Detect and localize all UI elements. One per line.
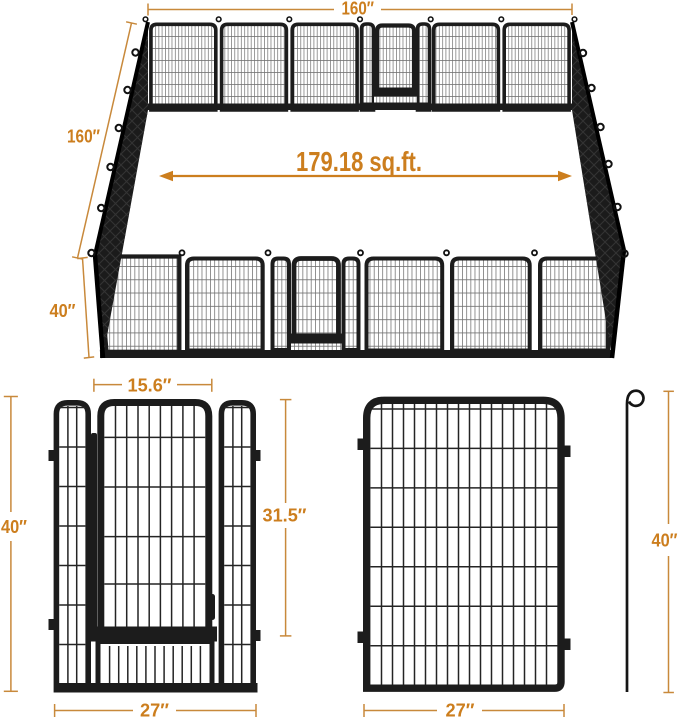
svg-text:15.6″: 15.6″ xyxy=(128,376,172,396)
svg-text:27″: 27″ xyxy=(140,701,169,719)
svg-text:160″: 160″ xyxy=(67,127,100,147)
svg-text:160″: 160″ xyxy=(342,0,375,19)
svg-text:179.18 sq.ft.: 179.18 sq.ft. xyxy=(296,146,422,177)
svg-text:40″: 40″ xyxy=(50,301,76,321)
svg-text:40″: 40″ xyxy=(652,531,678,551)
svg-text:27″: 27″ xyxy=(446,701,475,719)
svg-text:40″: 40″ xyxy=(1,517,27,537)
svg-text:31.5″: 31.5″ xyxy=(263,506,307,526)
